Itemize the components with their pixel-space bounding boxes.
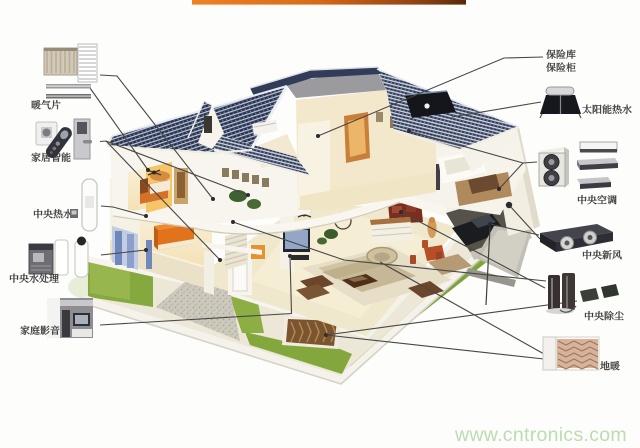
svg-text:www.cntronics.com: www.cntronics.com — [454, 424, 627, 446]
